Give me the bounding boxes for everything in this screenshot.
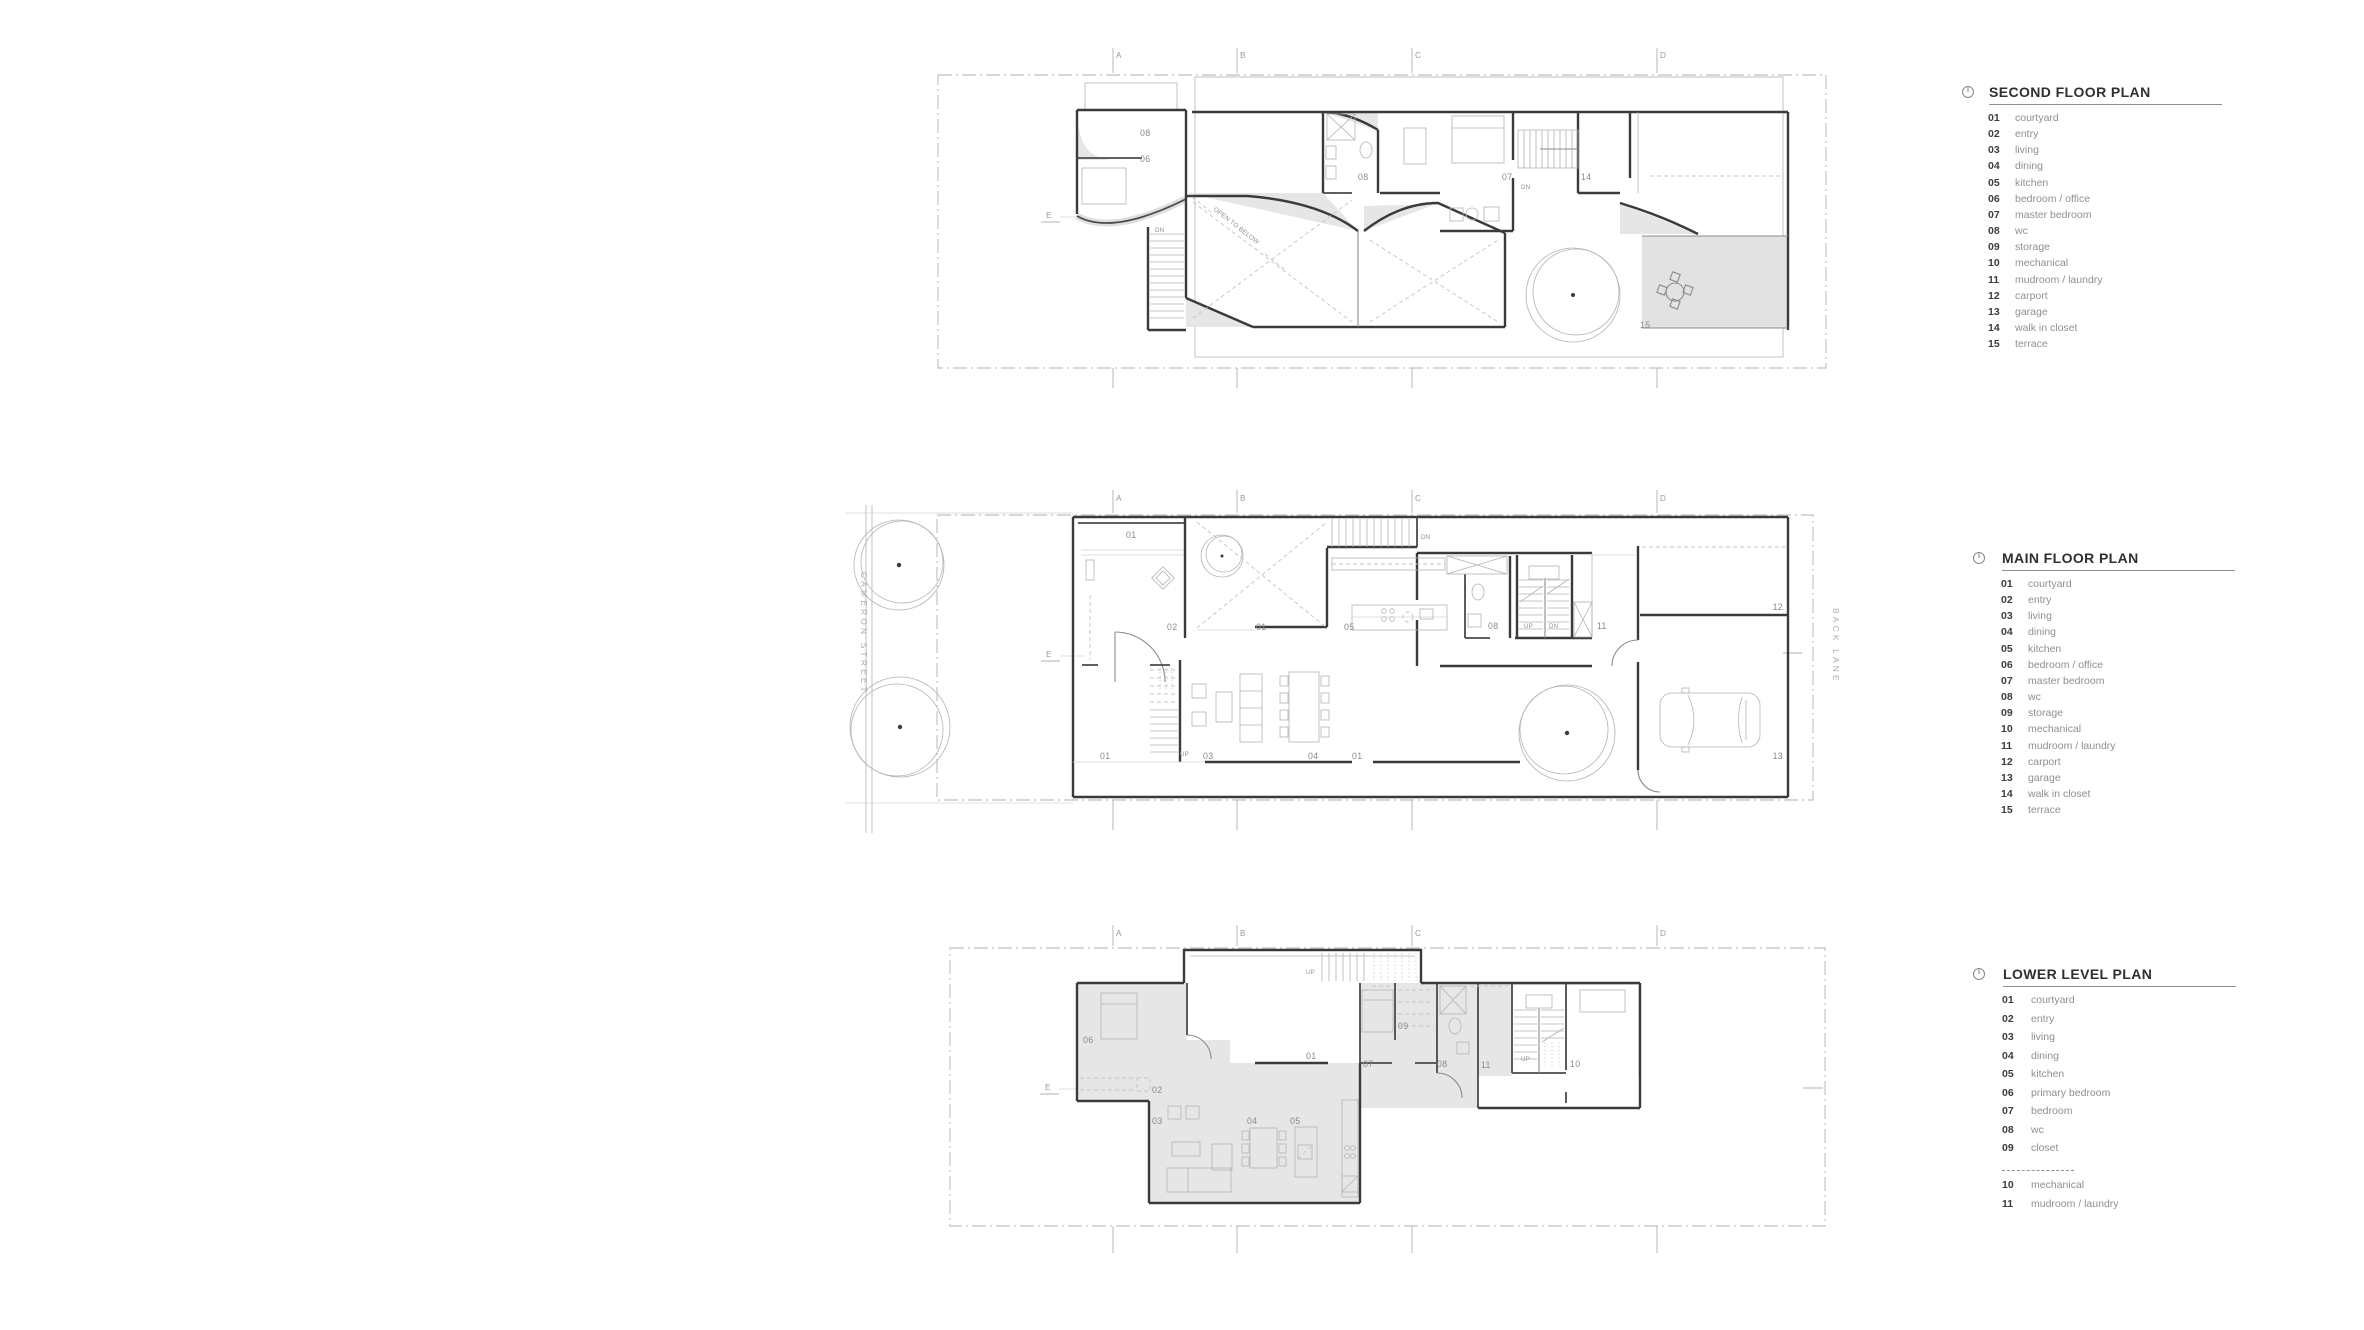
main-floor-plan-drawing: ABCDE010201050811121301030401DNUPDNUPCAM… <box>840 483 1890 848</box>
legend-item-label: living <box>2028 610 2052 622</box>
annotation-label: DN <box>1521 184 1530 191</box>
legend-item: 01courtyard <box>2001 578 2272 594</box>
legend-item: 11mudroom / laundry <box>1988 274 2261 290</box>
legend-item-label: living <box>2031 1031 2055 1043</box>
legend-item-label: bedroom / office <box>2028 659 2103 671</box>
legend-item-label: garage <box>2015 306 2048 318</box>
legend-item-label: kitchen <box>2031 1068 2064 1080</box>
legend-item: 12carport <box>2001 756 2272 772</box>
legend-item-label: entry <box>2015 128 2038 140</box>
car-icon <box>1660 688 1760 752</box>
legend-item-number: 07 <box>2002 1105 2031 1117</box>
legend-item-label: courtyard <box>2031 994 2075 1006</box>
room-number-label: 05 <box>1344 622 1354 632</box>
legend-item-label: mudroom / laundry <box>2031 1198 2119 1210</box>
legend-item: 07master bedroom <box>1988 209 2261 225</box>
legend-item-number: 02 <box>2002 1013 2031 1025</box>
room-number-label: 08 <box>1488 621 1498 631</box>
north-indicator-icon <box>1961 85 1975 99</box>
legend-title: MAIN FLOOR PLAN <box>2002 550 2139 566</box>
lower-level-plan-drawing: ABCDE0602030405010709081110UPUP <box>935 918 1870 1288</box>
legend-item-label: mechanical <box>2031 1179 2084 1191</box>
legend-item: 15terrace <box>2001 804 2272 820</box>
floor-shading <box>1078 113 1788 328</box>
legend-item: 13garage <box>2001 772 2272 788</box>
grid-letter: B <box>1240 929 1246 938</box>
legend-item: 08wc <box>1988 225 2261 241</box>
legend-item-number: 15 <box>1988 338 2015 350</box>
grid-letter: E <box>1046 650 1052 659</box>
room-number-label: 07 <box>1363 1059 1373 1069</box>
legend-item-label: courtyard <box>2015 112 2059 124</box>
legend-item-number: 02 <box>2001 594 2028 606</box>
legend-item-label: wc <box>2028 691 2041 703</box>
legend-item: 15terrace <box>1988 338 2261 354</box>
legend-item-label: bedroom <box>2031 1105 2072 1117</box>
legend-item: 06bedroom / office <box>1988 193 2261 209</box>
legend-item-number: 02 <box>1988 128 2015 140</box>
legend-item: 05kitchen <box>1988 177 2261 193</box>
legend-item-number: 03 <box>1988 144 2015 156</box>
legend-item-number: 09 <box>2001 707 2028 719</box>
legend-title: LOWER LEVEL PLAN <box>2003 966 2152 982</box>
legend-header: MAIN FLOOR PLAN <box>1972 549 2272 567</box>
legend-item-label: mudroom / laundry <box>2028 740 2116 752</box>
legend-item-label: kitchen <box>2028 643 2061 655</box>
room-number-label: 03 <box>1203 751 1213 761</box>
room-number-label: 08 <box>1437 1059 1447 1069</box>
legend-item: 02entry <box>2001 594 2272 610</box>
legend-item-number: 08 <box>2001 691 2028 703</box>
legend-item-label: primary bedroom <box>2031 1087 2110 1099</box>
legend-item-label: dining <box>2015 160 2043 172</box>
legend-item-number: 11 <box>2002 1198 2031 1210</box>
legend-item-label: dining <box>2031 1050 2059 1062</box>
room-number-label: 01 <box>1126 530 1136 540</box>
grid-letter: B <box>1240 51 1246 60</box>
legend-item-label: storage <box>2028 707 2063 719</box>
annotation-label: UP <box>1524 623 1533 630</box>
legend-item-number: 04 <box>1988 160 2015 172</box>
legend-item-label: courtyard <box>2028 578 2072 590</box>
north-indicator-icon <box>1972 967 1986 981</box>
room-number-label: 13 <box>1773 751 1783 761</box>
legend-item: 13garage <box>1988 306 2261 322</box>
street-label: BACK LANE <box>1831 608 1841 684</box>
legend-underline <box>1989 104 2222 105</box>
legend-item-list: 01courtyard02entry03living04dining05kitc… <box>1988 112 2261 354</box>
legend-item-number: 01 <box>1988 112 2015 124</box>
legend-item: 09storage <box>1988 241 2261 257</box>
legend-item: 01courtyard <box>2002 994 2272 1013</box>
legend-second-floor: SECOND FLOOR PLAN 01courtyard02entry03li… <box>1961 83 2261 354</box>
annotation-label: UP <box>1521 1056 1530 1063</box>
grid-letter: E <box>1046 211 1052 220</box>
legend-main-floor: MAIN FLOOR PLAN 01courtyard02entry03livi… <box>1972 549 2272 820</box>
legend-item-label: mudroom / laundry <box>2015 274 2103 286</box>
legend-item: 10mechanical <box>1988 257 2261 273</box>
legend-item-label: bedroom / office <box>2015 193 2090 205</box>
legend-item-label: walk in closet <box>2015 322 2077 334</box>
legend-item-label: closet <box>2031 1142 2058 1154</box>
legend-item-label: carport <box>2028 756 2061 768</box>
legend-item: 14walk in closet <box>2001 788 2272 804</box>
legend-item-number: 14 <box>2001 788 2028 800</box>
legend-item-label: garage <box>2028 772 2061 784</box>
legend-item-label: wc <box>2031 1124 2044 1136</box>
grid-letter: E <box>1045 1083 1051 1092</box>
legend-item: 05kitchen <box>2001 643 2272 659</box>
legend-item-label: terrace <box>2015 338 2048 350</box>
legend-item-number: 10 <box>1988 257 2015 269</box>
legend-item-number: 03 <box>2002 1031 2031 1043</box>
site-lines <box>845 490 1813 833</box>
legend-item-number: 04 <box>2001 626 2028 638</box>
legend-item: 08wc <box>2001 691 2272 707</box>
legend-item: 04dining <box>1988 160 2261 176</box>
grid-letter: A <box>1116 929 1122 938</box>
room-number-label: 01 <box>1256 622 1266 632</box>
legend-item: 10mechanical <box>2001 723 2272 739</box>
legend-item-number: 12 <box>2001 756 2028 768</box>
room-number-label: 05 <box>1290 1116 1300 1126</box>
legend-item-number: 15 <box>2001 804 2028 816</box>
legend-item-label: terrace <box>2028 804 2061 816</box>
legend-item-number: 11 <box>2001 740 2028 752</box>
legend-item: 03living <box>2002 1031 2272 1050</box>
legend-item-number: 05 <box>2002 1068 2031 1080</box>
room-number-label: 11 <box>1481 1060 1491 1070</box>
room-number-label: 01 <box>1306 1051 1316 1061</box>
room-number-label: 01 <box>1100 751 1110 761</box>
room-number-label: 07 <box>1502 172 1512 182</box>
legend-item-number: 09 <box>2002 1142 2031 1154</box>
legend-item: 01courtyard <box>1988 112 2261 128</box>
legend-item-number: 08 <box>1988 225 2015 237</box>
legend-header: LOWER LEVEL PLAN <box>1972 965 2272 983</box>
legend-item-number: 13 <box>2001 772 2028 784</box>
legend-item-label: dining <box>2028 626 2056 638</box>
legend-item-label: living <box>2015 144 2039 156</box>
legend-item-label: entry <box>2028 594 2051 606</box>
room-number-label: 02 <box>1167 622 1177 632</box>
legend-item-number: 12 <box>1988 290 2015 302</box>
plan-labels: ABCDE080608071415DNDNOPEN TO BELOW <box>1046 51 1666 330</box>
legend-item: 06bedroom / office <box>2001 659 2272 675</box>
annotation-label: UP <box>1180 751 1189 758</box>
grid-letter: A <box>1116 494 1122 503</box>
legend-title: SECOND FLOOR PLAN <box>1989 84 2151 100</box>
legend-item-label: master bedroom <box>2015 209 2091 221</box>
grid-letter: C <box>1415 494 1421 503</box>
legend-underline <box>2002 570 2235 571</box>
legend-item-number: 05 <box>1988 177 2015 189</box>
room-number-label: 14 <box>1581 172 1591 182</box>
legend-item-label: storage <box>2015 241 2050 253</box>
legend-item-label: master bedroom <box>2028 675 2104 687</box>
legend-item-number: 07 <box>1988 209 2015 221</box>
void-dashes <box>1192 197 1498 322</box>
annotation-label: UP <box>1306 969 1315 976</box>
legend-item-label: mechanical <box>2015 257 2068 269</box>
legend-item-number: 11 <box>1988 274 2015 286</box>
legend-item: 04dining <box>2001 626 2272 642</box>
legend-header: SECOND FLOOR PLAN <box>1961 83 2261 101</box>
legend-item-number: 03 <box>2001 610 2028 622</box>
legend-item-number: 01 <box>2001 578 2028 590</box>
trees <box>850 520 1615 781</box>
legend-item: 09storage <box>2001 707 2272 723</box>
street-label: CAMERON STREET <box>859 572 869 695</box>
legend-item-list: 01courtyard02entry03living04dining05kitc… <box>2002 994 2272 1217</box>
legend-item: 07bedroom <box>2002 1105 2272 1124</box>
room-number-label: 09 <box>1398 1021 1408 1031</box>
legend-item-number: 10 <box>2002 1179 2031 1191</box>
drawing-sheet: ABCDE080608071415DNDNOPEN TO BELOW <box>0 0 2364 1330</box>
legend-item: 11mudroom / laundry <box>2001 740 2272 756</box>
room-number-label: 11 <box>1597 621 1607 631</box>
legend-item-label: entry <box>2031 1013 2054 1025</box>
legend-lower-level: LOWER LEVEL PLAN 01courtyard02entry03liv… <box>1972 965 2272 1217</box>
legend-item: 04dining <box>2002 1050 2272 1069</box>
room-number-label: 08 <box>1358 172 1368 182</box>
legend-item: 11mudroom / laundry <box>2002 1198 2272 1217</box>
legend-item: 06primary bedroom <box>2002 1087 2272 1106</box>
legend-item-label: kitchen <box>2015 177 2048 189</box>
legend-item: 14walk in closet <box>1988 322 2261 338</box>
grid-letter: D <box>1660 494 1666 503</box>
annotation-label: DN <box>1421 534 1430 541</box>
legend-item-number: 10 <box>2001 723 2028 735</box>
legend-item-label: mechanical <box>2028 723 2081 735</box>
room-number-label: 15 <box>1640 320 1650 330</box>
room-number-label: 06 <box>1140 154 1150 164</box>
room-number-label: 12 <box>1773 602 1783 612</box>
legend-item-number: 04 <box>2002 1050 2031 1062</box>
legend-divider <box>2002 1161 2272 1180</box>
legend-item: 09closet <box>2002 1142 2272 1161</box>
legend-item-label: walk in closet <box>2028 788 2090 800</box>
room-number-label: 02 <box>1152 1085 1162 1095</box>
legend-item-number: 06 <box>2001 659 2028 671</box>
grid-letter: C <box>1415 929 1421 938</box>
room-number-label: 04 <box>1247 1116 1257 1126</box>
grid-letter: C <box>1415 51 1421 60</box>
legend-item-number: 01 <box>2002 994 2031 1006</box>
legend-item-number: 08 <box>2002 1124 2031 1136</box>
legend-item-number: 05 <box>2001 643 2028 655</box>
legend-item-number: 13 <box>1988 306 2015 318</box>
room-number-label: 06 <box>1083 1035 1093 1045</box>
legend-item-number: 06 <box>1988 193 2015 205</box>
legend-item: 03living <box>1988 144 2261 160</box>
legend-item: 05kitchen <box>2002 1068 2272 1087</box>
annotation-label: DN <box>1155 227 1164 234</box>
room-number-label: 04 <box>1308 751 1318 761</box>
legend-item-number: 07 <box>2001 675 2028 687</box>
legend-item-list: 01courtyard02entry03living04dining05kitc… <box>2001 578 2272 820</box>
legend-item-number: 06 <box>2002 1087 2031 1099</box>
room-number-label: 03 <box>1152 1116 1162 1126</box>
legend-item: 02entry <box>2002 1013 2272 1032</box>
grid-letter: A <box>1116 51 1122 60</box>
divider-line <box>2002 1170 2074 1171</box>
legend-item: 08wc <box>2002 1124 2272 1143</box>
grid-letter: D <box>1660 929 1666 938</box>
legend-underline <box>2003 986 2236 987</box>
legend-item-label: carport <box>2015 290 2048 302</box>
grid-letter: B <box>1240 494 1246 503</box>
grid-letter: D <box>1660 51 1666 60</box>
legend-item-number: 14 <box>1988 322 2015 334</box>
legend-item-number: 09 <box>1988 241 2015 253</box>
legend-item: 07master bedroom <box>2001 675 2272 691</box>
north-indicator-icon <box>1972 551 1986 565</box>
legend-item: 12carport <box>1988 290 2261 306</box>
annotation-label: DN <box>1549 623 1558 630</box>
furniture <box>1152 556 1592 742</box>
legend-item: 03living <box>2001 610 2272 626</box>
room-number-label: 10 <box>1570 1059 1580 1069</box>
legend-item-label: wc <box>2015 225 2028 237</box>
room-number-label: 08 <box>1140 128 1150 138</box>
legend-item: 02entry <box>1988 128 2261 144</box>
annotation-label: OPEN TO BELOW <box>1212 206 1261 246</box>
room-number-label: 01 <box>1352 751 1362 761</box>
legend-item: 10mechanical <box>2002 1179 2272 1198</box>
second-floor-plan-drawing: ABCDE080608071415DNDNOPEN TO BELOW <box>930 38 1865 398</box>
